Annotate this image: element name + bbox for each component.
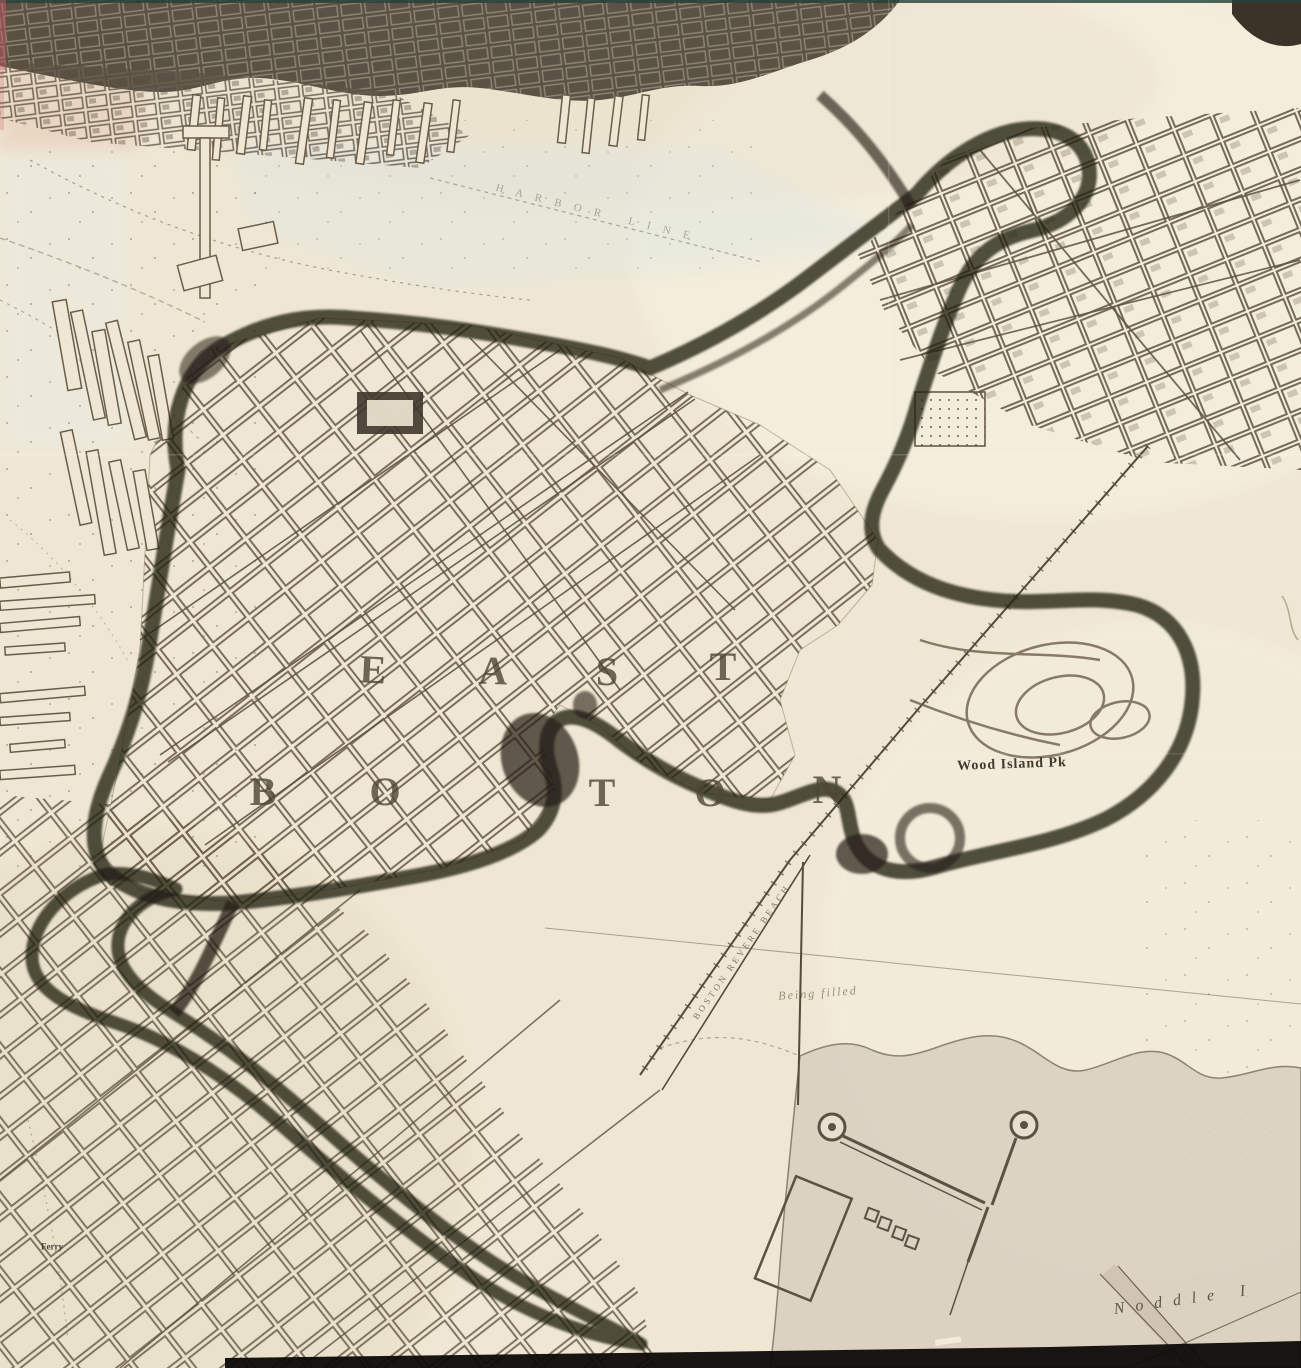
map-viewport[interactable]: EASTBOTONWood Island PkBeing filledNoddl…: [0, 0, 1301, 1368]
map-canvas: [0, 0, 1301, 1368]
